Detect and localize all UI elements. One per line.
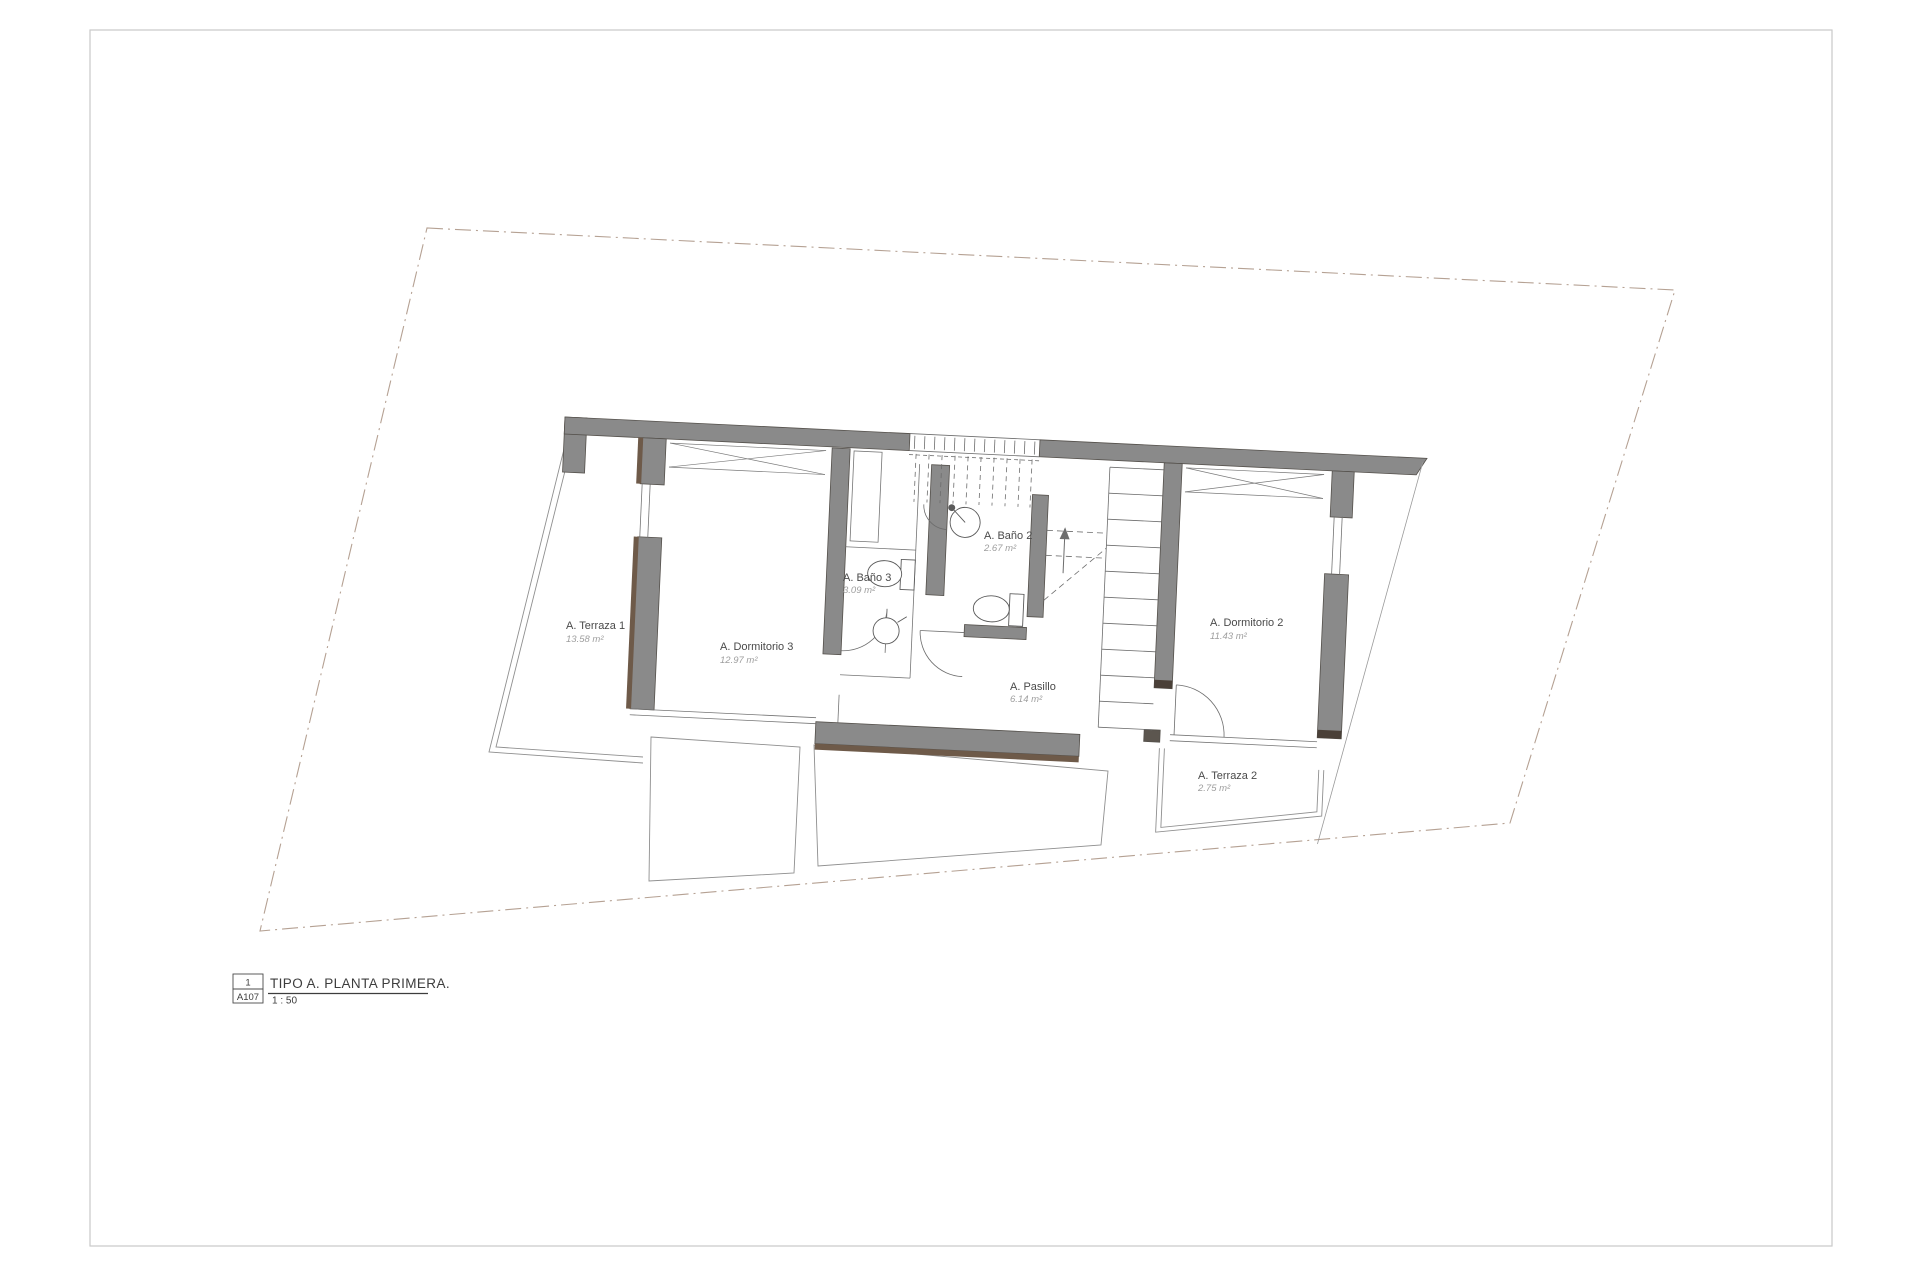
wall-top-band-a (564, 417, 910, 451)
window-right-glaze-2 (1340, 516, 1343, 574)
bano3-bottom-line (840, 675, 910, 678)
room-name: A. Pasillo (1010, 681, 1056, 693)
window-dorm3 (669, 443, 826, 474)
shower-symbol-bano2 (947, 505, 980, 539)
toilet-symbol-bano2 (973, 592, 1024, 626)
sink-symbol-bano3 (873, 615, 907, 645)
property-boundary-line (260, 228, 1675, 931)
room-name: A. Dormitorio 2 (1210, 617, 1283, 629)
room-label-pasillo: A. Pasillo 6.14 m² (1010, 681, 1056, 705)
room-area: 2.75 m² (1197, 783, 1231, 794)
dorm2-bottom-wall-1 (1170, 735, 1317, 742)
room-label-terraza-2: A. Terraza 2 2.75 m² (1197, 770, 1257, 794)
title-block: 1 A107 TIPO A. PLANTA PRIMERA. 1 : 50 (233, 974, 450, 1007)
wall-stair-right (1154, 463, 1182, 689)
room-name: A. Terraza 2 (1198, 770, 1257, 782)
drawing-sheet: A. Terraza 1 13.58 m² A. Dormitorio 3 12… (0, 0, 1920, 1280)
terrace1-edge-outer (489, 441, 643, 763)
wall-bano2-bottom (964, 625, 1027, 640)
room-name: A. Terraza 1 (566, 620, 625, 632)
dorm2-bottom-wall-2 (1170, 741, 1317, 748)
floor-plan-canvas: A. Terraza 1 13.58 m² A. Dormitorio 3 12… (0, 0, 1920, 1280)
drawing-title: TIPO A. PLANTA PRIMERA. (270, 976, 450, 991)
sheet-number: A107 (237, 992, 259, 1003)
cap-stair-wall (1154, 680, 1172, 689)
room-name: A. Dormitorio 3 (720, 641, 793, 653)
stair-break-lines (1044, 530, 1107, 603)
terrace2-railing (1156, 748, 1325, 840)
bano3-divider (846, 547, 916, 550)
room-area: 13.58 m² (566, 634, 604, 645)
window-left-glaze-2 (648, 484, 650, 537)
arrow-up-icon (1060, 527, 1071, 539)
walls (551, 417, 1427, 772)
room-name: A. Baño 2 (984, 530, 1032, 542)
room-area: 2.67 m² (983, 543, 1017, 554)
sheet-border (90, 30, 1832, 1246)
window-right-glaze-1 (1332, 516, 1335, 574)
room-area: 6.14 m² (1010, 694, 1043, 705)
building (547, 417, 1427, 848)
wall-dorm3-bano3 (823, 448, 850, 655)
room-area: 11.43 m² (1210, 631, 1248, 642)
wall-pier-right (1330, 471, 1354, 518)
door-dorm2 (1174, 685, 1226, 737)
window-dorm2 (1185, 468, 1324, 499)
window-left-glaze-1 (640, 484, 642, 537)
lower-roof-left (649, 737, 800, 881)
stair-direction-arrow (1058, 527, 1070, 573)
detail-number: 1 (245, 978, 250, 989)
drawing-scale: 1 : 50 (272, 996, 297, 1007)
room-label-dormitorio-2: A. Dormitorio 2 11.43 m² (1210, 617, 1283, 642)
wall-pier-left (640, 438, 666, 485)
wall-bano2-left (926, 465, 950, 596)
room-label-bano-2: A. Baño 2 2.67 m² (983, 530, 1032, 554)
room-name: A. Baño 3 (843, 572, 891, 584)
lower-roof-right (814, 745, 1108, 866)
room-label-terraza-1: A. Terraza 1 13.58 m² (566, 620, 625, 645)
room-area: 3.09 m² (843, 585, 876, 596)
site-edges (489, 441, 1108, 881)
wall-junction-block (1144, 729, 1161, 742)
cap-dorm2-wall (1317, 730, 1341, 739)
terrace1-edge-inner (496, 443, 643, 757)
room-area: 12.97 m² (720, 655, 758, 666)
shaft-outline (850, 451, 882, 542)
room-label-dormitorio-3: A. Dormitorio 3 12.97 m² (720, 641, 793, 666)
door-bano2 (918, 630, 964, 676)
pasillo-left-line (838, 695, 839, 723)
wall-dorm2-right (1317, 574, 1348, 739)
